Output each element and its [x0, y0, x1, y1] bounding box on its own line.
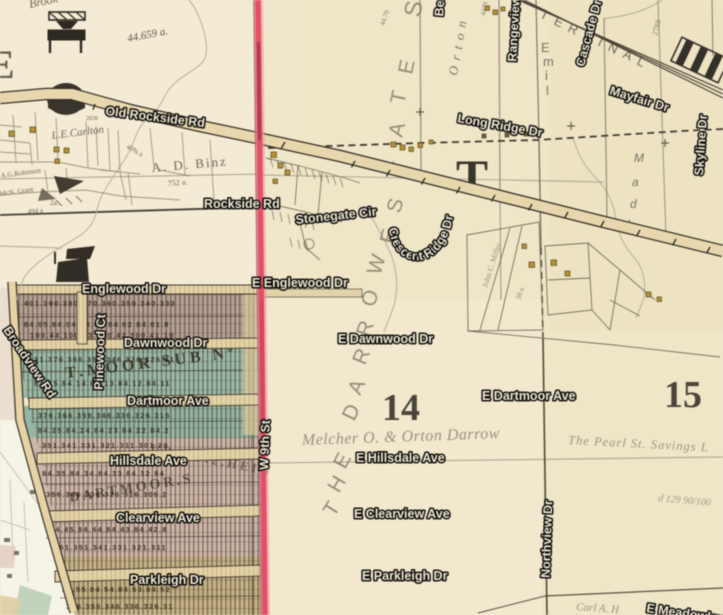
svg-text:494 a: 494 a	[27, 206, 44, 216]
svg-text:Clearview Ave: Clearview Ave	[116, 511, 200, 525]
svg-text:Pinewood Ct: Pinewood Ct	[92, 313, 109, 390]
svg-text:W 9th St: W 9th St	[257, 419, 273, 470]
svg-text:E Dartmoor Ave: E Dartmoor Ave	[482, 389, 576, 403]
svg-text:Bea: Bea	[432, 0, 448, 17]
svg-text:Northview Dr: Northview Dr	[539, 500, 556, 578]
svg-text:15: 15	[664, 374, 702, 416]
svg-text:Carl A. H: Carl A. H	[576, 601, 621, 615]
svg-text:2a.: 2a.	[50, 199, 59, 207]
svg-text:Dawnwood Dr: Dawnwood Dr	[124, 336, 207, 350]
svg-text:m: m	[543, 54, 554, 69]
svg-text:l: l	[546, 83, 549, 98]
svg-text:E Clearview Ave: E Clearview Ave	[354, 507, 450, 521]
svg-text:E: E	[541, 40, 550, 55]
svg-text:a: a	[632, 175, 639, 189]
svg-text:i: i	[545, 68, 548, 83]
svg-text:E: E	[0, 42, 15, 87]
svg-text:E Hillsdale Ave: E Hillsdale Ave	[356, 451, 445, 465]
svg-text:14: 14	[382, 387, 420, 429]
svg-text:E Parkleigh Dr: E Parkleigh Dr	[362, 569, 448, 583]
svg-text:Englewood Dr: Englewood Dr	[82, 282, 166, 296]
svg-text:Hillsdale Ave: Hillsdale Ave	[110, 454, 187, 468]
svg-text:2030: 2030	[86, 116, 98, 122]
svg-text:d: d	[630, 197, 637, 211]
svg-text:M: M	[634, 151, 644, 165]
svg-text:E Englewood Dr: E Englewood Dr	[252, 276, 348, 290]
svg-text:Rockside Rd: Rockside Rd	[204, 197, 280, 211]
svg-text:Dartmoor Ave: Dartmoor Ave	[127, 394, 209, 408]
svg-text:E Dawnwood Dr: E Dawnwood Dr	[338, 332, 433, 346]
svg-text:752 a.: 752 a.	[167, 177, 187, 188]
svg-text:Parkleigh Dr: Parkleigh Dr	[130, 573, 204, 587]
